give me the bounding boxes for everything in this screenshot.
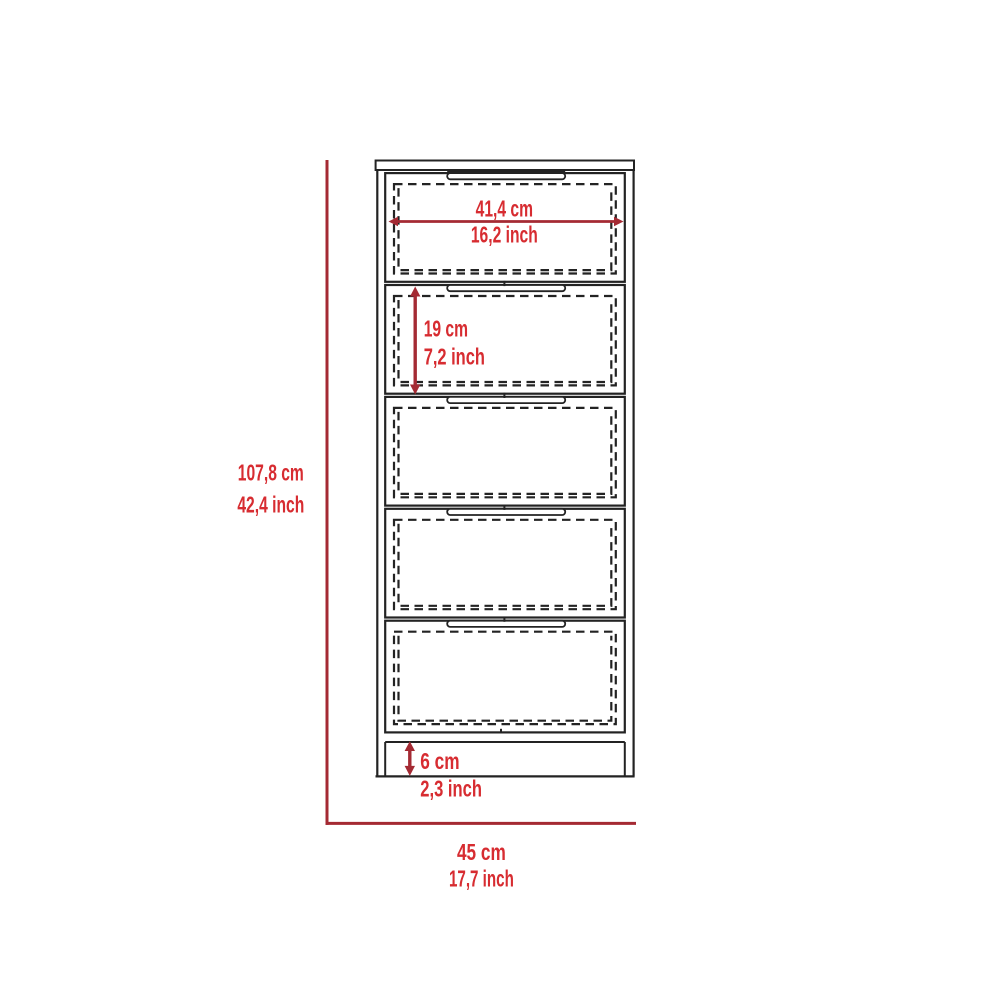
svg-text:42,4 inch: 42,4 inch <box>237 492 304 518</box>
svg-text:107,8 cm: 107,8 cm <box>238 460 304 486</box>
svg-text:7,2 inch: 7,2 inch <box>424 345 485 370</box>
svg-text:2,3 inch: 2,3 inch <box>420 777 482 802</box>
svg-text:45 cm: 45 cm <box>457 841 506 866</box>
svg-text:19 cm: 19 cm <box>424 317 468 343</box>
svg-text:17,7 inch: 17,7 inch <box>449 866 514 892</box>
svg-text:6 cm: 6 cm <box>420 750 459 775</box>
svg-text:41,4 cm: 41,4 cm <box>476 196 533 222</box>
svg-text:16,2 inch: 16,2 inch <box>471 223 538 249</box>
